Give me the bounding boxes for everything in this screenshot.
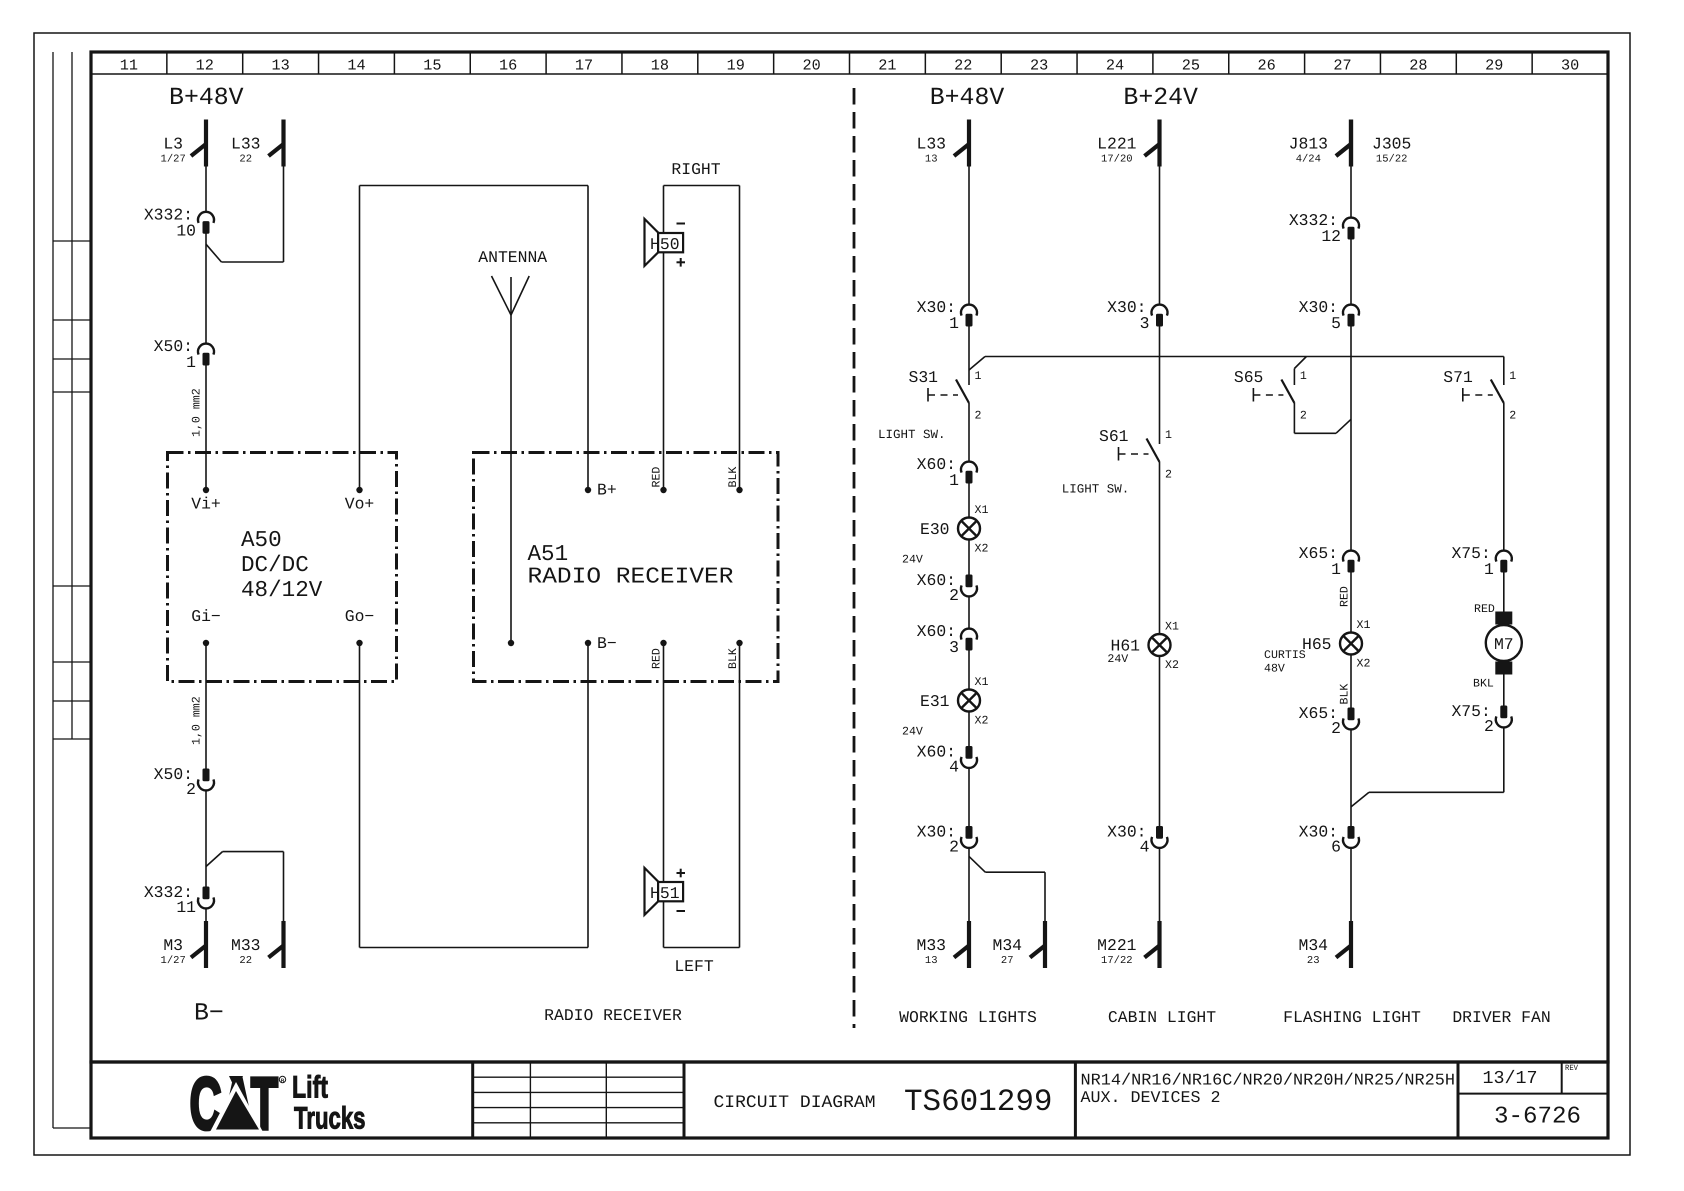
- svg-text:28: 28: [1409, 57, 1427, 75]
- svg-text:RED: RED: [651, 467, 664, 488]
- svg-text:LEFT: LEFT: [674, 957, 714, 976]
- svg-text:CURTIS: CURTIS: [1264, 649, 1306, 662]
- svg-text:11: 11: [176, 898, 196, 917]
- svg-text:29: 29: [1485, 57, 1503, 75]
- svg-text:J305: J305: [1372, 135, 1411, 154]
- svg-text:12: 12: [196, 57, 214, 75]
- svg-text:13: 13: [925, 955, 938, 967]
- svg-text:5: 5: [1331, 314, 1341, 333]
- svg-text:BLK: BLK: [727, 467, 740, 488]
- svg-text:X2: X2: [1357, 658, 1371, 671]
- svg-text:E31: E31: [920, 692, 950, 711]
- svg-text:RED: RED: [1339, 586, 1352, 607]
- svg-text:1: 1: [186, 353, 196, 372]
- svg-text:M33: M33: [916, 936, 946, 955]
- svg-text:1/27: 1/27: [161, 153, 186, 165]
- svg-text:21: 21: [878, 57, 896, 75]
- svg-text:S61: S61: [1099, 427, 1129, 446]
- svg-text:20: 20: [802, 57, 820, 75]
- svg-text:B−: B−: [194, 1000, 224, 1028]
- svg-text:27: 27: [1333, 57, 1351, 75]
- svg-text:B+48V: B+48V: [930, 84, 1005, 112]
- svg-text:24V: 24V: [902, 554, 923, 567]
- svg-text:A50: A50: [241, 527, 282, 553]
- svg-text:L33: L33: [231, 135, 261, 154]
- svg-text:M221: M221: [1097, 936, 1137, 955]
- svg-text:X2: X2: [975, 715, 989, 728]
- svg-text:2: 2: [975, 410, 982, 423]
- svg-text:BLK: BLK: [1339, 684, 1352, 705]
- svg-text:1: 1: [1300, 370, 1307, 383]
- svg-text:1: 1: [1331, 560, 1341, 579]
- svg-text:CABIN LIGHT: CABIN LIGHT: [1108, 1008, 1216, 1027]
- svg-text:L3: L3: [163, 135, 183, 154]
- svg-text:2: 2: [1165, 469, 1172, 482]
- svg-text:RADIO RECEIVER: RADIO RECEIVER: [544, 1006, 682, 1025]
- svg-text:M33: M33: [231, 936, 261, 955]
- svg-text:1: 1: [949, 314, 959, 333]
- svg-text:48V: 48V: [1264, 663, 1285, 676]
- svg-text:2: 2: [949, 838, 959, 857]
- svg-text:3: 3: [949, 638, 959, 657]
- svg-text:22: 22: [239, 153, 252, 165]
- svg-text:M7: M7: [1494, 635, 1514, 654]
- svg-text:Go−: Go−: [345, 607, 375, 626]
- svg-text:L221: L221: [1097, 135, 1137, 154]
- svg-text:NR14/NR16/NR16C/NR20/NR20H/NR2: NR14/NR16/NR16C/NR20/NR20H/NR25/NR25H: [1081, 1071, 1456, 1090]
- svg-text:3: 3: [1140, 314, 1150, 333]
- svg-text:M3: M3: [163, 936, 183, 955]
- svg-text:RIGHT: RIGHT: [671, 160, 720, 179]
- svg-text:22: 22: [954, 57, 972, 75]
- svg-text:4: 4: [949, 758, 959, 777]
- svg-text:2: 2: [1509, 410, 1516, 423]
- svg-text:10: 10: [176, 221, 196, 240]
- svg-text:LIGHT SW.: LIGHT SW.: [878, 428, 946, 442]
- svg-text:J813: J813: [1289, 135, 1328, 154]
- svg-text:BLK: BLK: [727, 648, 740, 669]
- svg-text:DRIVER FAN: DRIVER FAN: [1452, 1008, 1550, 1027]
- svg-text:13: 13: [272, 57, 290, 75]
- svg-text:B+: B+: [597, 481, 617, 500]
- svg-text:2: 2: [186, 780, 196, 799]
- svg-text:1: 1: [1484, 560, 1494, 579]
- svg-text:14: 14: [347, 57, 365, 75]
- svg-text:Trucks: Trucks: [294, 1101, 366, 1136]
- svg-text:26: 26: [1258, 57, 1276, 75]
- svg-text:X2: X2: [1165, 659, 1179, 672]
- svg-text:ANTENNA: ANTENNA: [478, 248, 547, 267]
- svg-text:23: 23: [1030, 57, 1048, 75]
- svg-text:X1: X1: [975, 676, 989, 689]
- svg-text:RED: RED: [1474, 603, 1495, 616]
- svg-text:AUX. DEVICES 2: AUX. DEVICES 2: [1081, 1088, 1221, 1107]
- svg-text:25: 25: [1182, 57, 1200, 75]
- svg-text:CIRCUIT DIAGRAM: CIRCUIT DIAGRAM: [714, 1093, 876, 1113]
- svg-text:3-6726: 3-6726: [1494, 1104, 1581, 1131]
- svg-text:E30: E30: [920, 520, 950, 539]
- svg-text:30: 30: [1561, 57, 1579, 75]
- svg-text:4: 4: [1140, 838, 1150, 857]
- svg-text:TS601299: TS601299: [904, 1085, 1053, 1120]
- svg-text:2: 2: [1300, 410, 1307, 423]
- svg-text:11: 11: [120, 57, 138, 75]
- svg-text:Lift: Lift: [292, 1070, 328, 1105]
- svg-text:X1: X1: [1357, 619, 1371, 632]
- svg-text:1: 1: [1509, 370, 1516, 383]
- svg-text:M34: M34: [1298, 936, 1328, 955]
- svg-text:24: 24: [1106, 57, 1124, 75]
- svg-text:Vi+: Vi+: [191, 495, 221, 514]
- svg-text:18: 18: [651, 57, 669, 75]
- svg-text:17/22: 17/22: [1101, 955, 1133, 967]
- svg-text:1: 1: [949, 471, 959, 490]
- svg-text:15/22: 15/22: [1376, 153, 1408, 165]
- svg-text:2: 2: [949, 586, 959, 605]
- svg-text:X2: X2: [975, 543, 989, 556]
- svg-text:S31: S31: [908, 368, 938, 387]
- svg-text:48/12V: 48/12V: [241, 577, 323, 603]
- svg-text:B+24V: B+24V: [1123, 84, 1198, 112]
- svg-text:BKL: BKL: [1473, 678, 1494, 691]
- svg-text:LIGHT SW.: LIGHT SW.: [1062, 483, 1130, 497]
- svg-text:X1: X1: [975, 504, 989, 517]
- svg-text:DC/DC: DC/DC: [241, 552, 309, 578]
- svg-text:16: 16: [499, 57, 517, 75]
- svg-text:S65: S65: [1234, 368, 1264, 387]
- svg-text:2: 2: [1331, 719, 1341, 738]
- svg-text:4/24: 4/24: [1296, 153, 1321, 165]
- svg-text:23: 23: [1307, 955, 1320, 967]
- svg-text:1: 1: [1165, 429, 1172, 442]
- svg-text:13: 13: [925, 153, 938, 165]
- svg-text:27: 27: [1001, 955, 1014, 967]
- svg-text:FLASHING LIGHT: FLASHING LIGHT: [1283, 1008, 1421, 1027]
- svg-text:B+48V: B+48V: [169, 84, 244, 112]
- svg-text:X1: X1: [1165, 621, 1179, 634]
- svg-text:S71: S71: [1443, 368, 1473, 387]
- svg-text:17: 17: [575, 57, 593, 75]
- svg-text:1,0 mm2: 1,0 mm2: [191, 696, 204, 745]
- svg-text:RADIO RECEIVER: RADIO RECEIVER: [528, 564, 734, 590]
- svg-text:H51: H51: [650, 884, 680, 903]
- svg-text:15: 15: [423, 57, 441, 75]
- svg-text:RED: RED: [651, 648, 664, 669]
- svg-text:22: 22: [239, 955, 252, 967]
- svg-text:Gi−: Gi−: [191, 607, 221, 626]
- svg-text:WORKING LIGHTS: WORKING LIGHTS: [899, 1008, 1037, 1027]
- svg-text:1,0 mm2: 1,0 mm2: [191, 388, 204, 437]
- svg-text:H50: H50: [650, 235, 680, 254]
- svg-text:19: 19: [727, 57, 745, 75]
- svg-text:1/27: 1/27: [161, 955, 186, 967]
- svg-text:6: 6: [1331, 838, 1341, 857]
- svg-text:17/20: 17/20: [1101, 153, 1133, 165]
- svg-text:L33: L33: [916, 135, 946, 154]
- svg-text:M34: M34: [992, 936, 1022, 955]
- svg-text:13/17: 13/17: [1483, 1069, 1538, 1089]
- svg-text:24V: 24V: [902, 726, 923, 739]
- svg-text:1: 1: [975, 370, 982, 383]
- svg-text:H65: H65: [1302, 635, 1332, 654]
- svg-text:B−: B−: [597, 634, 617, 653]
- svg-text:REV: REV: [1565, 1064, 1578, 1073]
- svg-text:Vo+: Vo+: [345, 495, 375, 514]
- svg-text:R: R: [281, 1078, 285, 1084]
- svg-text:24V: 24V: [1107, 653, 1128, 666]
- svg-text:12: 12: [1321, 227, 1341, 246]
- svg-text:2: 2: [1484, 717, 1494, 736]
